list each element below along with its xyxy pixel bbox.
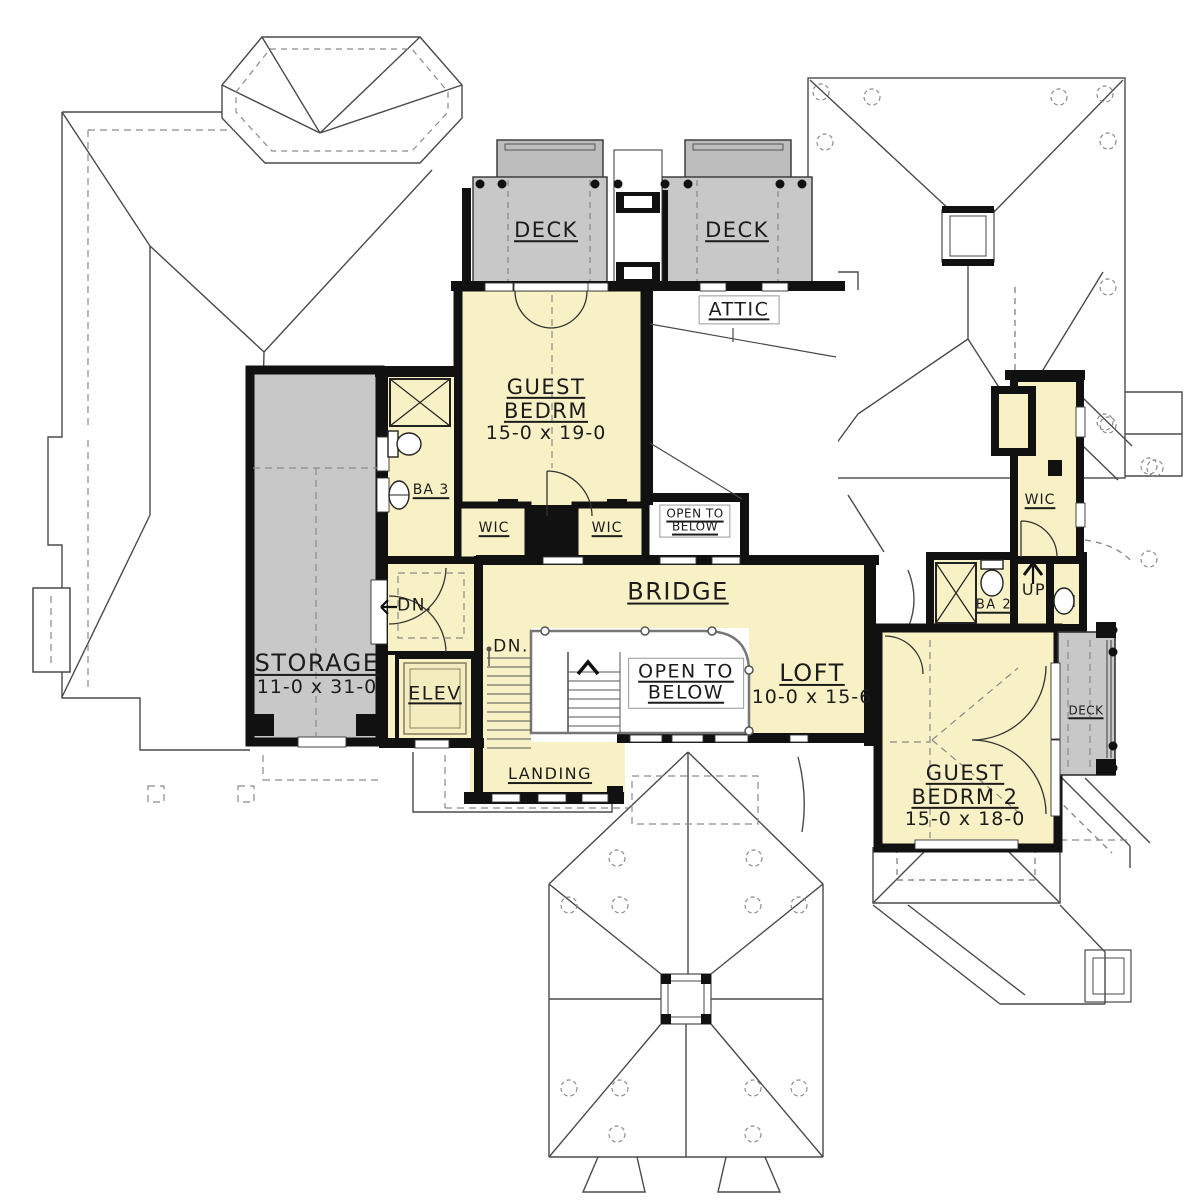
floor-plan: DECK DECK ATTIC GUEST BEDRM 15-0 x 19-0 … [0, 0, 1200, 1200]
ba3-area [383, 373, 458, 560]
toilet-ba3-icon [388, 431, 421, 457]
dn-hall-label: DN. [397, 596, 433, 615]
bridge-label: BRIDGE [627, 579, 728, 606]
wic-wing-label: WIC [1025, 493, 1056, 509]
wic-right-label: WIC [592, 521, 623, 537]
turret-roof [222, 37, 462, 163]
deck-top-left-structure [462, 140, 607, 284]
top-right-roof [808, 78, 1182, 628]
plan-drawing [0, 0, 1200, 1200]
elevator-label: ELEV [408, 683, 462, 704]
landing-label: LANDING [508, 765, 592, 783]
ba2-label: BA 2 [976, 599, 1012, 614]
sink-ba2-icon [1054, 588, 1074, 614]
storage-label: STORAGE 11-0 x 31-0 [255, 650, 380, 698]
dn-stairs-label: DN. [493, 637, 529, 656]
wic-left-label: WIC [479, 521, 510, 537]
chase-block [528, 505, 575, 560]
guest-bedroom-label: GUEST BEDRM 15-0 x 19-0 [486, 376, 607, 444]
wic-wing-alcove [995, 390, 1032, 452]
deck-top-right-structure [660, 140, 812, 285]
door-leaf-wic-left [498, 499, 518, 505]
loft-label: LOFT 10-0 x 15-6 [752, 660, 873, 708]
deck-right-label: DECK [1068, 704, 1103, 717]
toilet-ba2-icon [981, 560, 1003, 596]
deck-top-left-label: DECK [514, 219, 578, 243]
up-label: UP [1022, 581, 1046, 599]
ba3-label: BA 3 [413, 483, 450, 499]
attic-label: ATTIC [699, 295, 780, 324]
open-below-large-label: OPEN TO BELOW [628, 658, 744, 709]
door-leaf-wic-right [607, 499, 627, 505]
guest-bedroom2-label: GUEST BEDRM 2 15-0 x 18-0 [905, 762, 1026, 830]
deck-top-right-label: DECK [705, 219, 769, 243]
bottom-center-roof [549, 752, 823, 1192]
open-below-small-label: OPEN TO BELOW [659, 505, 730, 538]
sink-ba3-icon [389, 481, 409, 509]
deck-connector [614, 150, 662, 287]
